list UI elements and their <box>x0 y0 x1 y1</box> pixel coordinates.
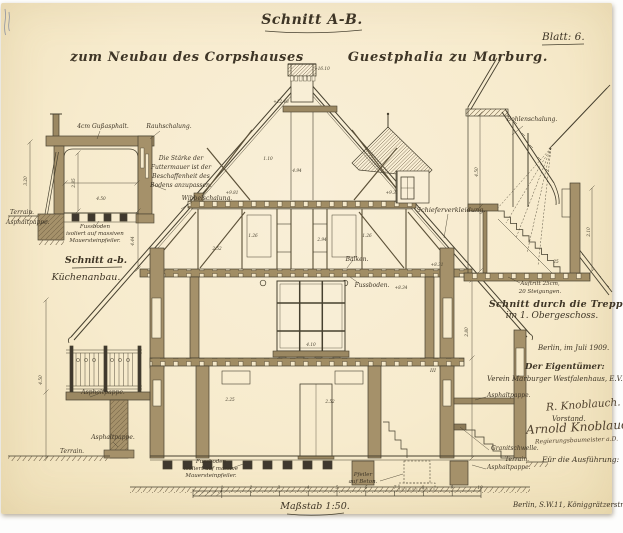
kitchen-floor-note-line1: Fussboden <box>80 225 110 231</box>
dimension-label: 1.26 <box>248 233 258 238</box>
main-label-asphaltpappe-upper-right: Asphaltpappe. <box>487 393 531 399</box>
main-label-wibbelschalung: Wibbelschalung. <box>182 196 232 202</box>
titleblock-owner-name: Verein Marburger Westfalenhaus, E.V. <box>487 376 623 383</box>
dimension-label: 1 <box>221 485 224 490</box>
main-label-schieferverkleidung: Schieferverkleidung. <box>417 207 486 214</box>
stair-label-auftritt-line2: 20 Steigungen. <box>519 290 561 296</box>
dimension-label: 2.80 <box>464 327 469 338</box>
dimension-label: 7 <box>394 485 397 490</box>
dimension-label: 1.10 <box>263 156 273 161</box>
kitchen-caption-schnitt: Schnitt a-b. <box>65 256 127 266</box>
sheet-number: Blatt: 6. <box>542 32 585 43</box>
titleblock-date: Berlin, im Juli 1909. <box>538 345 609 352</box>
dimension-label: +8.31 <box>431 262 444 267</box>
stair-caption-line1: Schnitt durch die Treppe <box>489 300 623 310</box>
dimension-label: +8.34 <box>395 285 408 290</box>
scanned-drawing: +16.10+12.484.941.10+9.81+9.312.521.262.… <box>0 0 623 533</box>
kitchen-note-line4: Bodens anzupassen. <box>150 183 212 189</box>
titleblock-execution-heading: Für die Ausführung: <box>542 456 619 464</box>
dimension-label: 4.10 <box>305 342 316 347</box>
main-label-asphaltpappe-lower-right: Asphaltpappe. <box>487 465 531 471</box>
dimension-label: 6 <box>365 485 368 490</box>
stair-label-auftritt-line1: Auftritt 25cm, <box>520 282 559 288</box>
section-linework: +16.10+12.484.941.10+9.81+9.312.521.262.… <box>0 0 623 533</box>
main-label-asphaltpappe-upper-left: Asphaltpappe. <box>81 390 125 396</box>
dimension-label: 2.52 <box>324 399 335 404</box>
dimension-label: 3.20 <box>23 176 28 186</box>
dimension-label: 5 <box>336 485 339 490</box>
kitchen-label-terrain: Terrain. <box>10 210 34 216</box>
dimension-label: 2.94 <box>316 237 327 242</box>
kitchen-label-gussasphalt: 4cm Gußasphalt. <box>77 124 129 130</box>
main-floor-note-line1: Fussboden <box>196 460 226 466</box>
main-label-terrain-left: Terrain. <box>60 449 84 455</box>
main-label-pfeiler-line1: Pfeiler <box>354 473 372 479</box>
dimension-label: 1.26 <box>362 233 372 238</box>
dimension-label: 2.25 <box>224 397 235 402</box>
main-label-granitschwelle: Granitschwelle. <box>491 446 539 452</box>
kitchen-note-line3: Beschaffenheit des <box>152 174 210 180</box>
drawing-subtitle-right: Guestphalia zu Marburg. <box>348 51 548 64</box>
dimension-label: 9 <box>451 485 454 490</box>
dimension-label: 4.50 <box>38 375 43 386</box>
dimension-label: 2.52 <box>211 246 222 251</box>
archive-stamp-mark <box>5 9 10 35</box>
stair-caption-line2: im 1. Obergeschoss. <box>506 312 599 321</box>
dimension-label: III <box>429 368 437 374</box>
dimension-label: 2 <box>249 485 253 490</box>
main-floor-note-line2: isoliert auf massive <box>184 467 238 473</box>
main-floor-note-line3: Mauersteinpfeiler. <box>185 474 236 480</box>
titleblock-address: Berlin, S.W.11, Königgrätzerstr. 104. <box>513 502 623 509</box>
dimension-label: +12.48 <box>273 99 289 104</box>
kitchen-label-asphaltpappe: Asphaltpappe. <box>6 220 50 226</box>
dimension-label: 3 <box>278 485 281 490</box>
dimension-label: 4.50 <box>95 196 106 201</box>
main-label-fussboden: Fussboden. <box>355 283 390 289</box>
dimension-label: 2.85 <box>71 178 76 189</box>
dimension-label: 2.10 <box>586 227 591 238</box>
drawing-subtitle-left: zum Neubau des Corpshauses <box>70 51 304 64</box>
scale-label: Maßstab 1:50. <box>280 502 350 512</box>
stair-section-drawing <box>464 58 612 295</box>
kitchen-note-line1: Die Stärke der <box>159 156 204 162</box>
kitchen-caption-kuechenanbau: Küchenanbau. <box>52 273 121 283</box>
dimension-label: 8 <box>422 485 425 490</box>
main-label-pfeiler-line2: auf Beton. <box>349 480 378 486</box>
main-label-terrain-right: Terrain. <box>505 457 529 463</box>
dimension-label: 4.44 <box>130 236 135 247</box>
drawing-title: Schnitt A-B. <box>261 13 363 27</box>
kitchen-floor-note-line3: Mauersteinpfeiler. <box>69 239 120 245</box>
dimension-label: 10 <box>477 485 483 490</box>
stair-label-bohlenschalung: Bohlenschalung. <box>507 117 558 123</box>
kitchen-floor-note-line2: isoliert auf massiven <box>66 232 124 238</box>
dimension-label: 25 <box>552 259 559 264</box>
main-label-balken: Balken. <box>346 257 369 263</box>
kitchen-label-schalung: Rauhschalung. <box>146 124 191 130</box>
titleblock-owner-heading: Der Eigentümer: <box>525 363 605 372</box>
dimension-label: 4.94 <box>291 168 302 173</box>
dimension-label: 4 <box>306 485 310 490</box>
main-label-asphaltpappe-lower-left: Asphaltpappe. <box>91 435 135 441</box>
kitchen-note-line2: Futtermauer ist der <box>151 165 211 171</box>
dimension-label: +16.10 <box>314 66 330 71</box>
dimension-label: +9.31 <box>386 190 399 195</box>
dimension-label: 4.50 <box>474 167 479 178</box>
